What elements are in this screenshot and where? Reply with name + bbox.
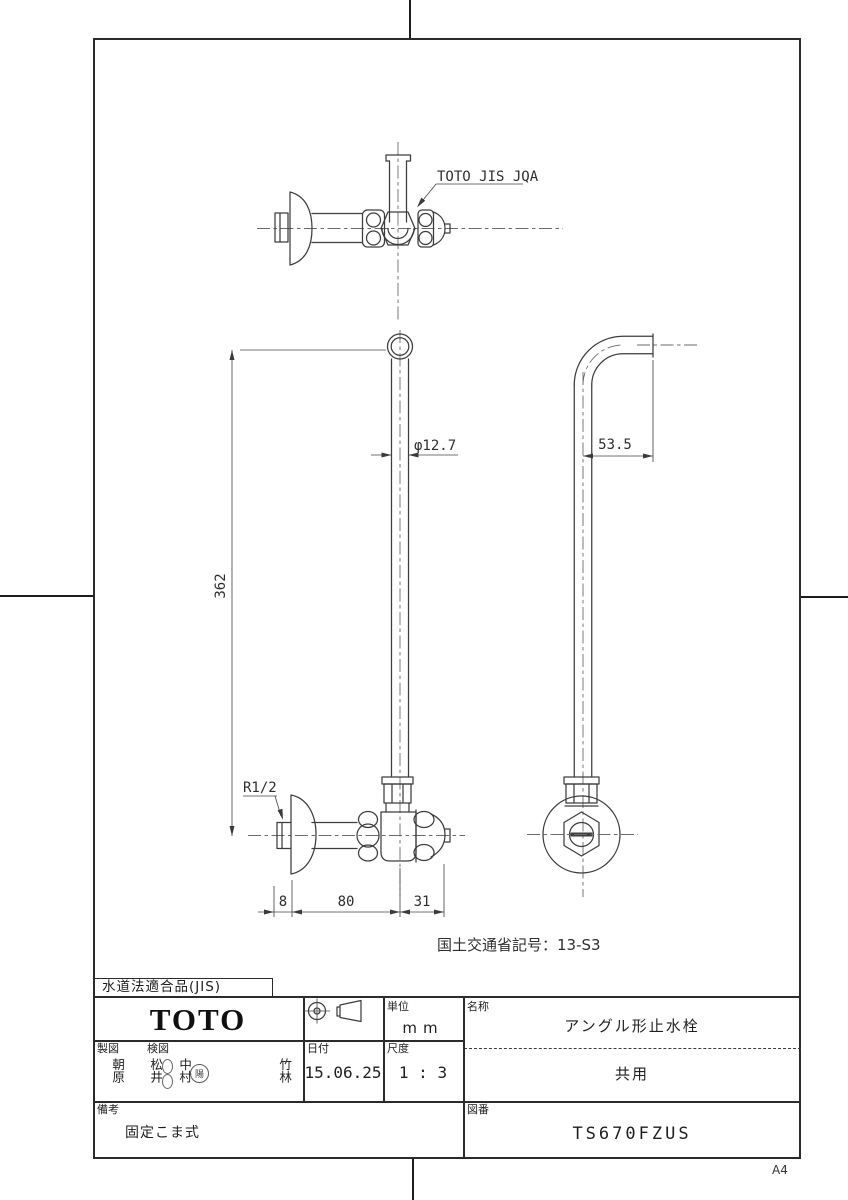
titleblock-line xyxy=(93,1101,801,1103)
checker-name-1: 松井 xyxy=(149,1058,162,1083)
checker-label: 検図 xyxy=(147,1043,169,1054)
dim-body-length: 80 xyxy=(338,894,355,910)
unit-value: mm xyxy=(383,1018,463,1038)
leader-line xyxy=(419,184,523,205)
escutcheon-front xyxy=(291,795,316,874)
manufacturer-logo: TOTO xyxy=(93,1002,303,1038)
date-value: 15.06.25 xyxy=(303,1062,383,1084)
technical-drawing: TOTO JIS JQA φ12.7 362 xyxy=(0,0,848,978)
remarks-value: 固定こま式 xyxy=(125,1126,200,1140)
checker-name-3: 竹林 xyxy=(278,1058,291,1083)
side-view: 53.5 xyxy=(527,334,700,897)
shared-use: 共用 xyxy=(463,1062,801,1086)
nut-front xyxy=(382,777,413,784)
dim-bend-offset: 53.5 xyxy=(598,437,632,453)
scale-value: 1 : 3 xyxy=(383,1062,463,1084)
titleblock-top-line xyxy=(93,996,801,998)
drafter-label: 製図 xyxy=(97,1043,119,1054)
name-label: 名称 xyxy=(467,1001,489,1012)
stamp-oval xyxy=(162,1059,173,1074)
remarks-label: 備考 xyxy=(97,1104,119,1115)
valve-body-front xyxy=(381,812,416,861)
date-label: 日付 xyxy=(307,1043,329,1054)
dim-pipe-diameter: φ12.7 xyxy=(414,438,456,454)
projection-symbol xyxy=(303,998,383,1040)
paper-size-label: A4 xyxy=(772,1163,788,1177)
dim-pipe-length: 362 xyxy=(213,573,229,598)
centering-mark-bottom xyxy=(412,1159,414,1200)
product-name: アングル形止水栓 xyxy=(463,1014,801,1038)
front-view: φ12.7 362 xyxy=(213,330,465,917)
drawing-number-label: 図番 xyxy=(467,1104,489,1115)
drafter-name: 朝原 xyxy=(111,1058,124,1083)
certification-label: TOTO JIS JQA xyxy=(437,169,539,185)
scale-label: 尺度 xyxy=(387,1043,409,1054)
thread-stub-top xyxy=(275,213,288,242)
dim-wall-offset: 8 xyxy=(279,894,287,910)
stamp-oval xyxy=(162,1074,173,1089)
drawing-sheet: TOTO JIS JQA φ12.7 362 xyxy=(0,0,848,1200)
unit-label: 単位 xyxy=(387,1001,409,1012)
nut-side xyxy=(564,777,599,784)
ministry-code-note: 国土交通省記号：13-S3 xyxy=(437,936,601,954)
dim-handle-length: 31 xyxy=(414,894,431,910)
checker-stamp: 陽 xyxy=(190,1064,209,1083)
shank-top xyxy=(312,214,362,243)
dim-thread: R1/2 xyxy=(243,780,277,796)
titleblock-line xyxy=(383,998,385,1101)
drawing-number-value: TS670FZUS xyxy=(463,1122,801,1146)
checker-name-2: 中村 xyxy=(178,1058,191,1083)
name-shared-divider xyxy=(464,1048,801,1049)
third-angle-projection-icon xyxy=(303,998,367,1024)
stamp-character: 陽 xyxy=(195,1067,204,1080)
compliance-box: 水道法適合品(JIS) xyxy=(93,978,273,998)
top-view: TOTO JIS JQA xyxy=(257,142,563,320)
